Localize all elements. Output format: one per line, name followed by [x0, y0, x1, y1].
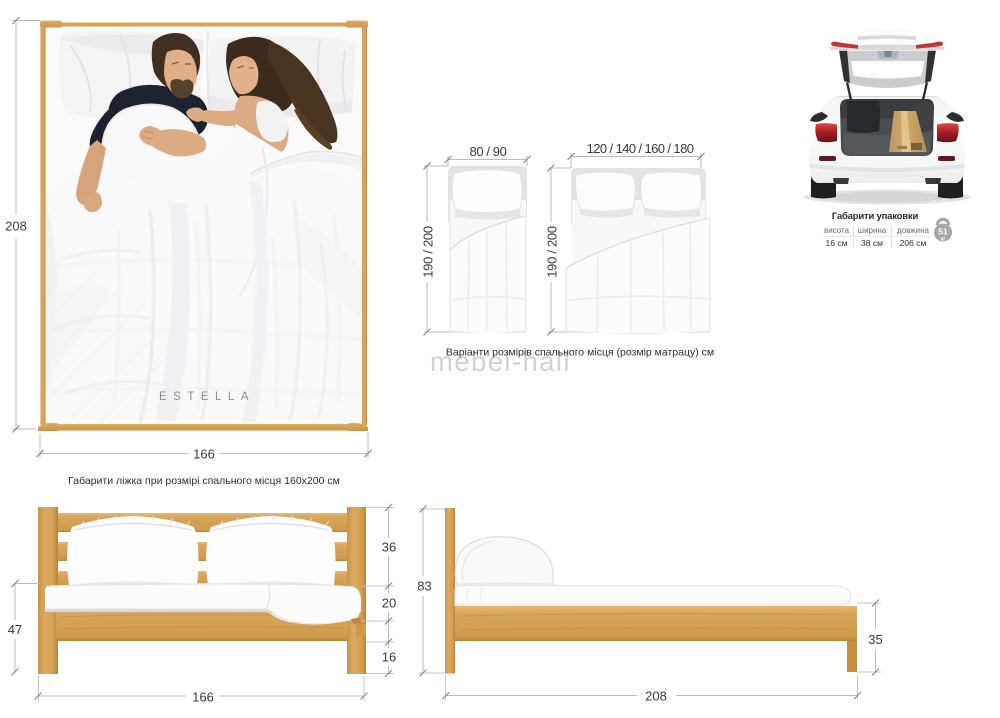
svg-text:ESTELLA: ESTELLA — [159, 391, 255, 403]
svg-text:38 см: 38 см — [861, 238, 883, 248]
svg-text:Габарити упаковки: Габарити упаковки — [832, 211, 919, 222]
svg-text:47: 47 — [8, 622, 22, 637]
svg-text:Габарити ліжка при розмірі спа: Габарити ліжка при розмірі спального міс… — [68, 475, 340, 487]
svg-text:20: 20 — [382, 596, 396, 611]
svg-text:ширина: ширина — [858, 226, 887, 235]
svg-text:висота: висота — [824, 226, 850, 235]
svg-text:80 / 90: 80 / 90 — [470, 144, 507, 159]
svg-text:190 / 200: 190 / 200 — [421, 226, 436, 278]
svg-text:208: 208 — [5, 219, 27, 234]
svg-text:120 / 140 / 160 / 180: 120 / 140 / 160 / 180 — [587, 141, 694, 156]
svg-text:208: 208 — [645, 689, 667, 704]
svg-text:36: 36 — [382, 540, 396, 555]
svg-text:довжина: довжина — [897, 226, 930, 235]
svg-text:190 / 200: 190 / 200 — [545, 226, 560, 278]
svg-text:Варіанти розмірів спального мі: Варіанти розмірів спального місця (розмі… — [446, 347, 714, 359]
svg-text:35: 35 — [868, 632, 882, 647]
svg-text:51: 51 — [938, 227, 948, 237]
svg-text:16: 16 — [382, 650, 396, 665]
svg-text:83: 83 — [417, 579, 431, 594]
svg-text:206 см: 206 см — [900, 238, 927, 248]
svg-text:кг: кг — [941, 237, 946, 243]
svg-text:166: 166 — [192, 690, 214, 705]
svg-text:16 см: 16 см — [826, 238, 848, 248]
svg-text:166: 166 — [193, 446, 215, 461]
